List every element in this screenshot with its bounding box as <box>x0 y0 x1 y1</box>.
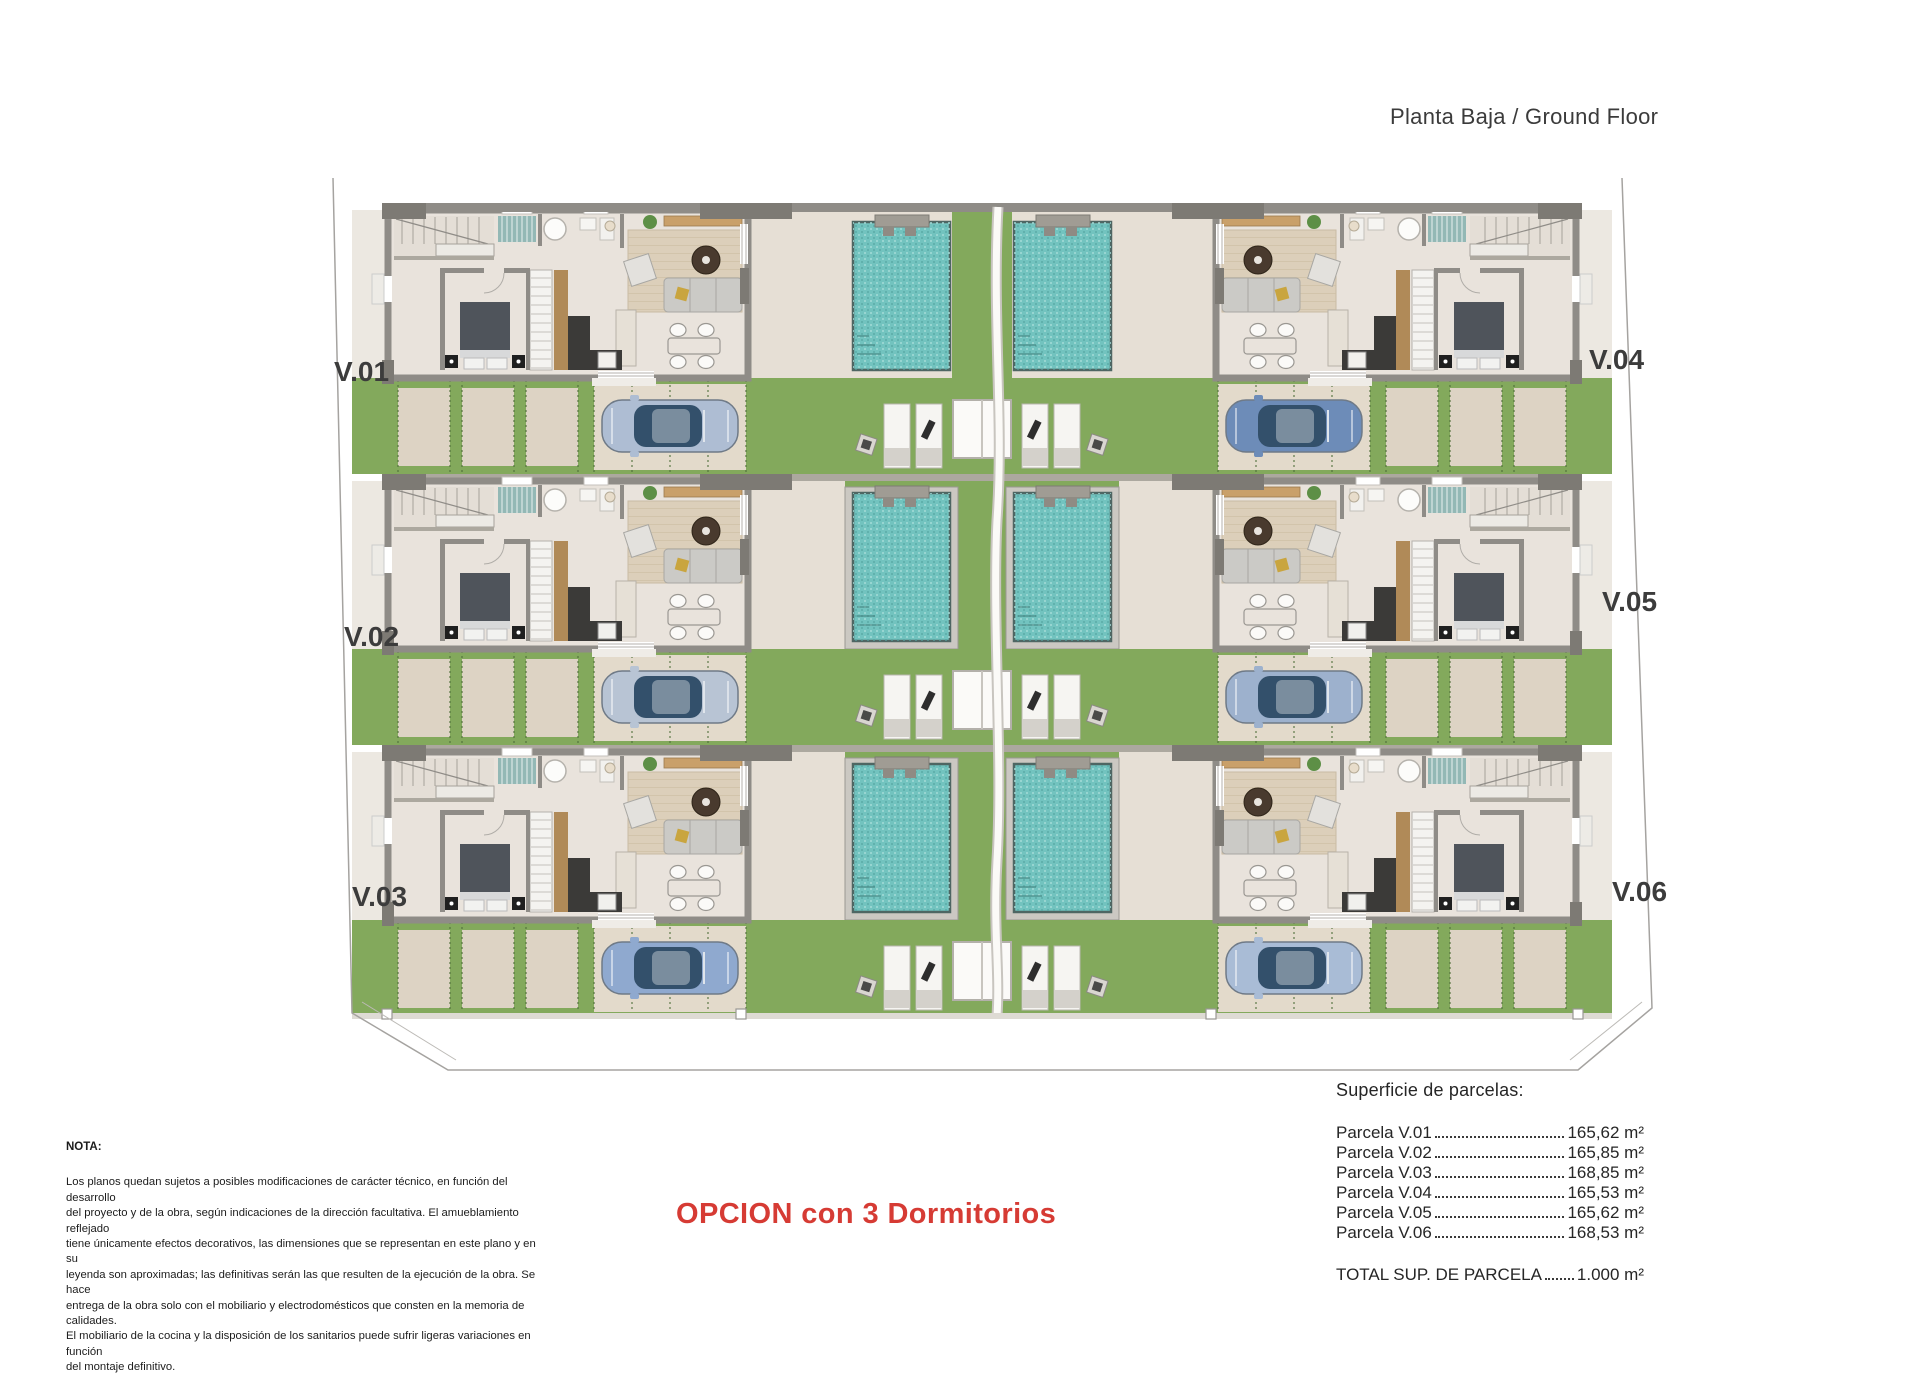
sun-lounger <box>916 404 942 468</box>
parcel-label: Parcela V.03 <box>1336 1163 1432 1183</box>
sofa <box>664 549 742 583</box>
parcel-label: Parcela V.01 <box>1336 1123 1432 1143</box>
parcel-row: Parcela V.05165,62 m² <box>1336 1203 1644 1223</box>
patio-step <box>1308 920 1372 928</box>
sofa <box>1222 549 1300 583</box>
patio-step <box>1308 649 1372 657</box>
swimming-pool <box>1014 215 1111 370</box>
site-top-wall <box>382 203 1582 212</box>
plant <box>1307 215 1321 229</box>
villa-label-v04: V.04 <box>1589 344 1644 375</box>
swimming-pool <box>845 757 958 920</box>
villa-unit <box>372 203 792 386</box>
staircase <box>394 758 494 802</box>
parked-car <box>602 666 738 728</box>
parcel-label: Parcela V.04 <box>1336 1183 1432 1203</box>
patio-step <box>1308 378 1372 386</box>
parcel-value: 168,53 m² <box>1567 1223 1644 1243</box>
driveway-slab <box>462 659 514 737</box>
swimming-pool <box>1006 757 1119 920</box>
villa-row <box>352 474 1612 752</box>
parcel-total-label: TOTAL SUP. DE PARCELA <box>1336 1265 1542 1285</box>
parcel-leader <box>1435 1176 1565 1178</box>
driveway-slab <box>462 930 514 1008</box>
driveway-slab <box>1514 388 1566 466</box>
bed <box>460 844 510 900</box>
note-heading: NOTA: <box>66 1140 546 1155</box>
sofa <box>1222 278 1300 312</box>
driveway-slab <box>1450 659 1502 737</box>
sun-lounger <box>916 946 942 1010</box>
driveway-slab <box>462 388 514 466</box>
note-line: leyenda son aproximadas; las definitivas… <box>66 1268 546 1299</box>
note-lines: Los planos quedan sujetos a posibles mod… <box>66 1175 546 1375</box>
parcel-total-value: 1.000 m² <box>1577 1265 1644 1285</box>
staircase <box>1470 487 1570 531</box>
shower <box>544 489 566 511</box>
kitchen-cabinet <box>1396 812 1410 912</box>
parcel-surface-block: Superficie de parcelas: Parcela V.01165,… <box>1336 1080 1644 1285</box>
driveway-slab <box>526 930 578 1008</box>
parcel-row: Parcela V.03168,85 m² <box>1336 1163 1644 1183</box>
kitchen-cabinet <box>1396 270 1410 370</box>
parcel-row: Parcela V.06168,53 m² <box>1336 1223 1644 1243</box>
villa-unit-mirrored <box>1172 474 1592 657</box>
shower <box>1398 218 1420 240</box>
bed <box>460 302 510 358</box>
plant <box>643 215 657 229</box>
parcel-row: Parcela V.02165,85 m² <box>1336 1143 1644 1163</box>
site-bottom-wall <box>352 1013 1612 1019</box>
bed <box>460 573 510 629</box>
plant <box>643 757 657 771</box>
driveway-slab <box>398 388 450 466</box>
swimming-pool <box>853 215 950 370</box>
plant <box>1307 486 1321 500</box>
villa-label-v03: V.03 <box>352 881 407 912</box>
parcel-row: Parcela V.04165,53 m² <box>1336 1183 1644 1203</box>
staircase <box>1470 216 1570 260</box>
note-line: tiene únicamente efectos decorativos, la… <box>66 1237 546 1268</box>
parcel-leader <box>1435 1216 1565 1218</box>
note-block: NOTA: Los planos quedan sujetos a posibl… <box>66 1140 546 1376</box>
swimming-pool <box>1006 486 1119 649</box>
villa-label-v06: V.06 <box>1612 876 1667 907</box>
parcel-leader <box>1435 1156 1565 1158</box>
wardrobe <box>530 270 552 370</box>
driveway-slab <box>1386 388 1438 466</box>
kitchen-cabinet <box>554 270 568 370</box>
parcel-value: 168,85 m² <box>1567 1163 1644 1183</box>
wardrobe <box>530 812 552 912</box>
villa-row <box>352 745 1612 1013</box>
parcel-total-row: TOTAL SUP. DE PARCELA 1.000 m² <box>1336 1265 1644 1285</box>
bed <box>1454 844 1504 900</box>
sun-lounger <box>884 675 910 739</box>
parked-car <box>602 395 738 457</box>
driveway-slab <box>1450 930 1502 1008</box>
sun-lounger <box>916 675 942 739</box>
wardrobe <box>1412 541 1434 641</box>
parcel-leader <box>1435 1136 1565 1138</box>
parcel-list: Parcela V.01165,62 m²Parcela V.02165,85 … <box>1336 1123 1644 1243</box>
villa-unit-mirrored <box>1172 745 1592 928</box>
parcel-value: 165,62 m² <box>1567 1203 1644 1223</box>
parked-car <box>1226 666 1362 728</box>
staircase <box>394 216 494 260</box>
patio-step <box>592 378 656 386</box>
villa-label-v02: V.02 <box>344 621 399 652</box>
shower <box>1398 760 1420 782</box>
swimming-pool <box>845 486 958 649</box>
parked-car <box>602 937 738 999</box>
villa-row <box>352 203 1612 481</box>
villa-label-v05: V.05 <box>1602 586 1657 617</box>
pool-steps-bar <box>1036 757 1090 769</box>
sofa <box>664 278 742 312</box>
parcel-label: Parcela V.02 <box>1336 1143 1432 1163</box>
villa-unit <box>1172 474 1592 657</box>
villa-unit <box>1172 745 1592 928</box>
option-label: OPCION con 3 Dormitorios <box>676 1198 1136 1231</box>
note-line: del proyecto y de la obra, según indicac… <box>66 1206 546 1237</box>
parcel-surface-heading: Superficie de parcelas: <box>1336 1080 1644 1101</box>
parcel-row: Parcela V.01165,62 m² <box>1336 1123 1644 1143</box>
parcel-value: 165,85 m² <box>1567 1143 1644 1163</box>
sun-lounger <box>1022 946 1048 1010</box>
sun-lounger <box>1054 404 1080 468</box>
sun-lounger <box>1054 946 1080 1010</box>
driveway-slab <box>1386 930 1438 1008</box>
driveway-slab <box>398 659 450 737</box>
shower <box>1398 489 1420 511</box>
sun-lounger <box>1022 404 1048 468</box>
bed <box>1454 573 1504 629</box>
staircase <box>1470 758 1570 802</box>
note-line: entrega de la obra solo con el mobiliari… <box>66 1299 546 1330</box>
sofa <box>664 820 742 854</box>
plant <box>1307 757 1321 771</box>
patio-step <box>592 649 656 657</box>
parked-car <box>1226 937 1362 999</box>
sofa <box>1222 820 1300 854</box>
parcel-leader <box>1435 1196 1565 1198</box>
sun-lounger <box>884 404 910 468</box>
wardrobe <box>530 541 552 641</box>
pool-steps-bar <box>875 757 929 769</box>
pool-steps-bar <box>1036 215 1090 227</box>
wardrobe <box>1412 812 1434 912</box>
shower <box>544 218 566 240</box>
parcel-label: Parcela V.06 <box>1336 1223 1432 1243</box>
sun-lounger <box>1054 675 1080 739</box>
kitchen-cabinet <box>554 812 568 912</box>
parcel-label: Parcela V.05 <box>1336 1203 1432 1223</box>
pool-steps-bar <box>875 215 929 227</box>
note-line: Los planos quedan sujetos a posibles mod… <box>66 1175 546 1206</box>
villa-unit <box>372 474 792 657</box>
staircase <box>394 487 494 531</box>
parked-car <box>1226 395 1362 457</box>
plant <box>643 486 657 500</box>
kitchen-cabinet <box>1396 541 1410 641</box>
kitchen-cabinet <box>554 541 568 641</box>
villa-label-v01: V.01 <box>334 356 389 387</box>
sun-lounger <box>1022 675 1048 739</box>
patio-step <box>592 920 656 928</box>
bed <box>1454 302 1504 358</box>
note-line: del montaje definitivo. <box>66 1360 546 1375</box>
sun-lounger <box>884 946 910 1010</box>
villa-unit-mirrored <box>1172 203 1592 386</box>
villa-unit <box>1172 203 1592 386</box>
page-title: Planta Baja / Ground Floor <box>1390 104 1690 130</box>
pool-steps-bar <box>875 486 929 498</box>
villa-unit <box>372 745 792 928</box>
driveway-slab <box>1514 930 1566 1008</box>
driveway-slab <box>1514 659 1566 737</box>
pool-steps-bar <box>1036 486 1090 498</box>
shower <box>544 760 566 782</box>
site-plan-drawing <box>333 178 1652 1070</box>
driveway-slab <box>398 930 450 1008</box>
parcel-value: 165,53 m² <box>1567 1183 1644 1203</box>
driveway-slab <box>526 659 578 737</box>
driveway-slab <box>1450 388 1502 466</box>
driveway-slab <box>526 388 578 466</box>
note-line: El mobiliario de la cocina y la disposic… <box>66 1329 546 1360</box>
parcel-leader <box>1435 1236 1565 1238</box>
parcel-value: 165,62 m² <box>1567 1123 1644 1143</box>
wardrobe <box>1412 270 1434 370</box>
driveway-slab <box>1386 659 1438 737</box>
